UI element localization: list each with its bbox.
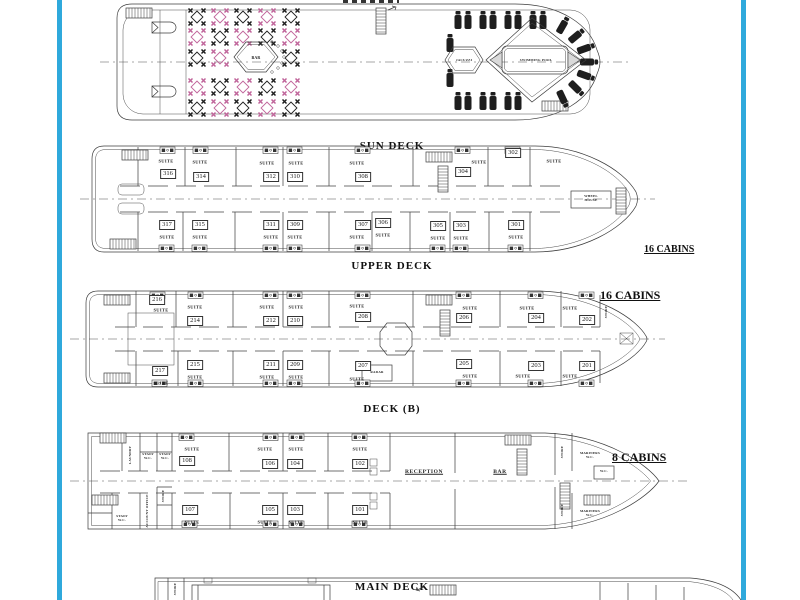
mariners-wc-label: MARINERS W.C. — [580, 510, 600, 518]
laundry-label: LAUNDRY — [129, 446, 133, 464]
suite-label: SUITE — [287, 235, 302, 240]
upper-deck-section: SUITE SUITE SUITE SUITE SUITE SUITE SUIT… — [0, 140, 800, 260]
suite-label: SUITE — [192, 235, 207, 240]
suite-label: SUITE — [187, 305, 202, 310]
suite-label: SUITE — [259, 161, 274, 166]
suite-label: SUITE — [508, 235, 523, 240]
suite-label: SUITE — [462, 306, 477, 311]
suite-label: SUITE — [562, 374, 577, 379]
suite-label: SUITE — [187, 375, 202, 380]
suite-label: SUITE — [375, 233, 390, 238]
deck-caption-upper: UPPER DECK — [292, 260, 492, 272]
suite-label: SUITE — [257, 447, 272, 452]
staff-wc-label: STAFF W.C. — [142, 453, 154, 461]
cabin-203: 203 — [528, 361, 544, 371]
cabin-104: 104 — [287, 459, 303, 469]
cabin-208: 208 — [355, 312, 371, 322]
suite-label: SUITE — [153, 381, 168, 386]
suite-label: SUITE — [462, 374, 477, 379]
cabin-309: 309 — [287, 220, 303, 230]
suite-label: SUITE — [349, 161, 364, 166]
suite-label: SUITE — [153, 308, 168, 313]
store-label: STORE — [605, 306, 609, 318]
jacuzzi-label: JACUZZI — [456, 59, 472, 63]
store-label: STORE — [561, 504, 565, 516]
suite-label: SUITE — [349, 235, 364, 240]
suite-label: SUITE — [519, 306, 534, 311]
suite-label: SUITE — [288, 520, 303, 525]
suite-label: SUITE — [259, 305, 274, 310]
suite-label: SUITE — [349, 304, 364, 309]
cabin-207: 207 — [355, 361, 371, 371]
cabin-312: 312 — [263, 172, 279, 182]
cabin-108: 108 — [179, 456, 195, 466]
suite-label: SUITE — [546, 159, 561, 164]
cabin-103: 103 — [287, 505, 303, 515]
suite-label: SUITE — [259, 375, 274, 380]
cabin-302: 302 — [505, 148, 521, 158]
suite-label: SUITE — [349, 377, 364, 382]
suite-label: SUITE — [453, 236, 468, 241]
cabin-317: 317 — [159, 220, 175, 230]
deck-plan-page: BAR JACUZZI SWIMMING POOL SUN DECK — [0, 0, 800, 600]
cabin-212: 212 — [263, 316, 279, 326]
cabin-206: 206 — [456, 313, 472, 323]
cabin-308: 308 — [355, 172, 371, 182]
account-office-label: ACCOUNT OFFICE — [146, 494, 150, 528]
wc-label: W.C. — [600, 470, 608, 474]
deck-caption-deckb: DECK (B) — [292, 403, 492, 415]
suite-label: SUITE — [257, 520, 272, 525]
cabin-311: 311 — [263, 220, 279, 230]
cabin-216: 216 — [149, 295, 165, 305]
suite-label: SUITE — [430, 236, 445, 241]
suite-label: SUITE — [352, 447, 367, 452]
cabin-217: 217 — [152, 366, 168, 376]
deck-b-drawing — [0, 283, 800, 403]
staff-wc-label: STAFF W.C. — [159, 453, 171, 461]
cabin-202: 202 — [579, 315, 595, 325]
sun-bar-label: BAR — [251, 56, 260, 61]
reception-label: RECEPTION — [405, 470, 443, 475]
suite-label: SUITE — [158, 159, 173, 164]
cabin-101: 101 — [352, 505, 368, 515]
upper-deck-drawing — [0, 140, 800, 260]
upper-cabins-note: 16 CABINS — [644, 244, 694, 255]
cabin-307: 307 — [355, 220, 371, 230]
cabin-102: 102 — [352, 459, 368, 469]
suite-label: SUITE — [562, 306, 577, 311]
cabin-316: 316 — [160, 169, 176, 179]
cabin-106: 106 — [262, 459, 278, 469]
suite-label: SUITE — [288, 305, 303, 310]
suite-label: SUITE — [184, 447, 199, 452]
cabin-204: 204 — [528, 313, 544, 323]
cabin-314: 314 — [193, 172, 209, 182]
cabin-306: 306 — [375, 218, 391, 228]
suite-label: SUITE — [288, 447, 303, 452]
cabin-105: 105 — [262, 505, 278, 515]
suite-label: SUITE — [471, 160, 486, 165]
cabin-201: 201 — [579, 361, 595, 371]
cabin-303: 303 — [453, 221, 469, 231]
main-deck-section: LAUNDRY STAFF W.C. STAFF W.C. STORE ACCO… — [0, 425, 800, 547]
suite-label: SUITE — [352, 520, 367, 525]
radar-label: RADAR — [370, 371, 383, 375]
staff-wc-label: STAFF W.C. — [116, 515, 128, 523]
main-cabins-note: 8 CABINS — [612, 450, 666, 465]
cabin-210: 210 — [287, 316, 303, 326]
lower-deck-section: STORE — [0, 572, 800, 600]
mariners-wc-label: MARINERS W.C. — [580, 452, 600, 460]
suite-label: SUITE — [263, 235, 278, 240]
cabin-205: 205 — [456, 359, 472, 369]
suite-label: SUITE — [192, 160, 207, 165]
cabin-304: 304 — [455, 167, 471, 177]
deck-b-section: 216 SUITE SUITE SUITE SUITE SUITE SUITE … — [0, 283, 800, 403]
store-label: STORE — [162, 490, 166, 502]
cabin-315: 315 — [192, 220, 208, 230]
swimming-pool-label: SWIMMING POOL — [520, 59, 552, 63]
wheel-house-label: WHEEL HOUSE — [584, 195, 598, 203]
sun-deck-section: BAR JACUZZI SWIMMING POOL — [0, 0, 800, 125]
main-deck-drawing — [0, 425, 800, 547]
cabin-305: 305 — [430, 221, 446, 231]
suite-label: SUITE — [288, 375, 303, 380]
deckb-cabins-note: 16 CABINS — [600, 288, 660, 303]
lower-deck-drawing — [0, 572, 800, 600]
suite-label: SUITE — [288, 161, 303, 166]
cabin-215: 215 — [187, 360, 203, 370]
cabin-107: 107 — [182, 505, 198, 515]
suite-label: SUITE — [159, 235, 174, 240]
bar-room-label: BAR — [493, 470, 506, 475]
cabin-209: 209 — [287, 360, 303, 370]
store-label: STORE — [174, 583, 178, 595]
cabin-214: 214 — [187, 316, 203, 326]
suite-label: SUITE — [184, 520, 199, 525]
store-label: STORE — [561, 446, 565, 458]
suite-label: SUITE — [515, 374, 530, 379]
cabin-310: 310 — [287, 172, 303, 182]
cabin-301: 301 — [508, 220, 524, 230]
cabin-211: 211 — [263, 360, 279, 370]
sun-deck-drawing — [0, 0, 800, 125]
